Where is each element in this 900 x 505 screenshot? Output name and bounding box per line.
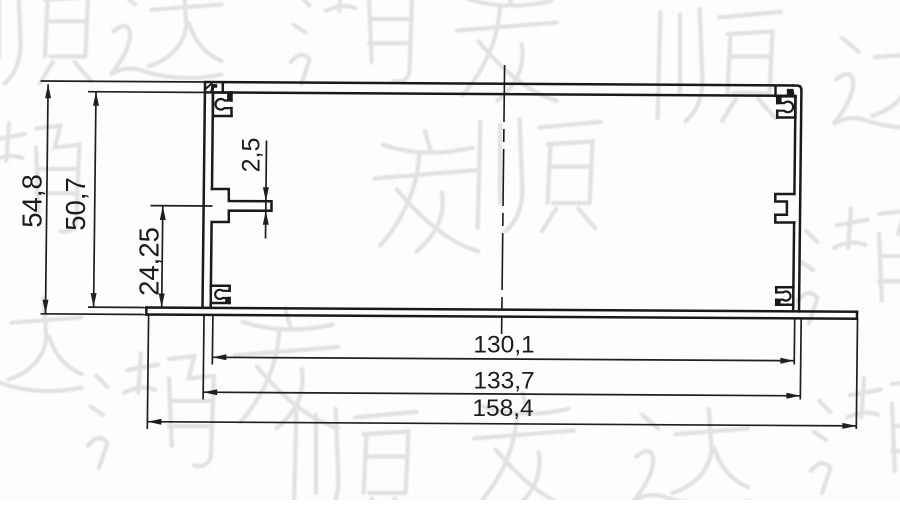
svg-text:2,5: 2,5 xyxy=(238,138,266,173)
svg-text:158,4: 158,4 xyxy=(472,395,533,422)
svg-text:24,25: 24,25 xyxy=(134,227,165,296)
svg-text:133,7: 133,7 xyxy=(473,367,534,394)
svg-text:54,8: 54,8 xyxy=(17,174,48,228)
svg-text:130,1: 130,1 xyxy=(473,331,534,358)
svg-text:50,7: 50,7 xyxy=(60,177,91,231)
